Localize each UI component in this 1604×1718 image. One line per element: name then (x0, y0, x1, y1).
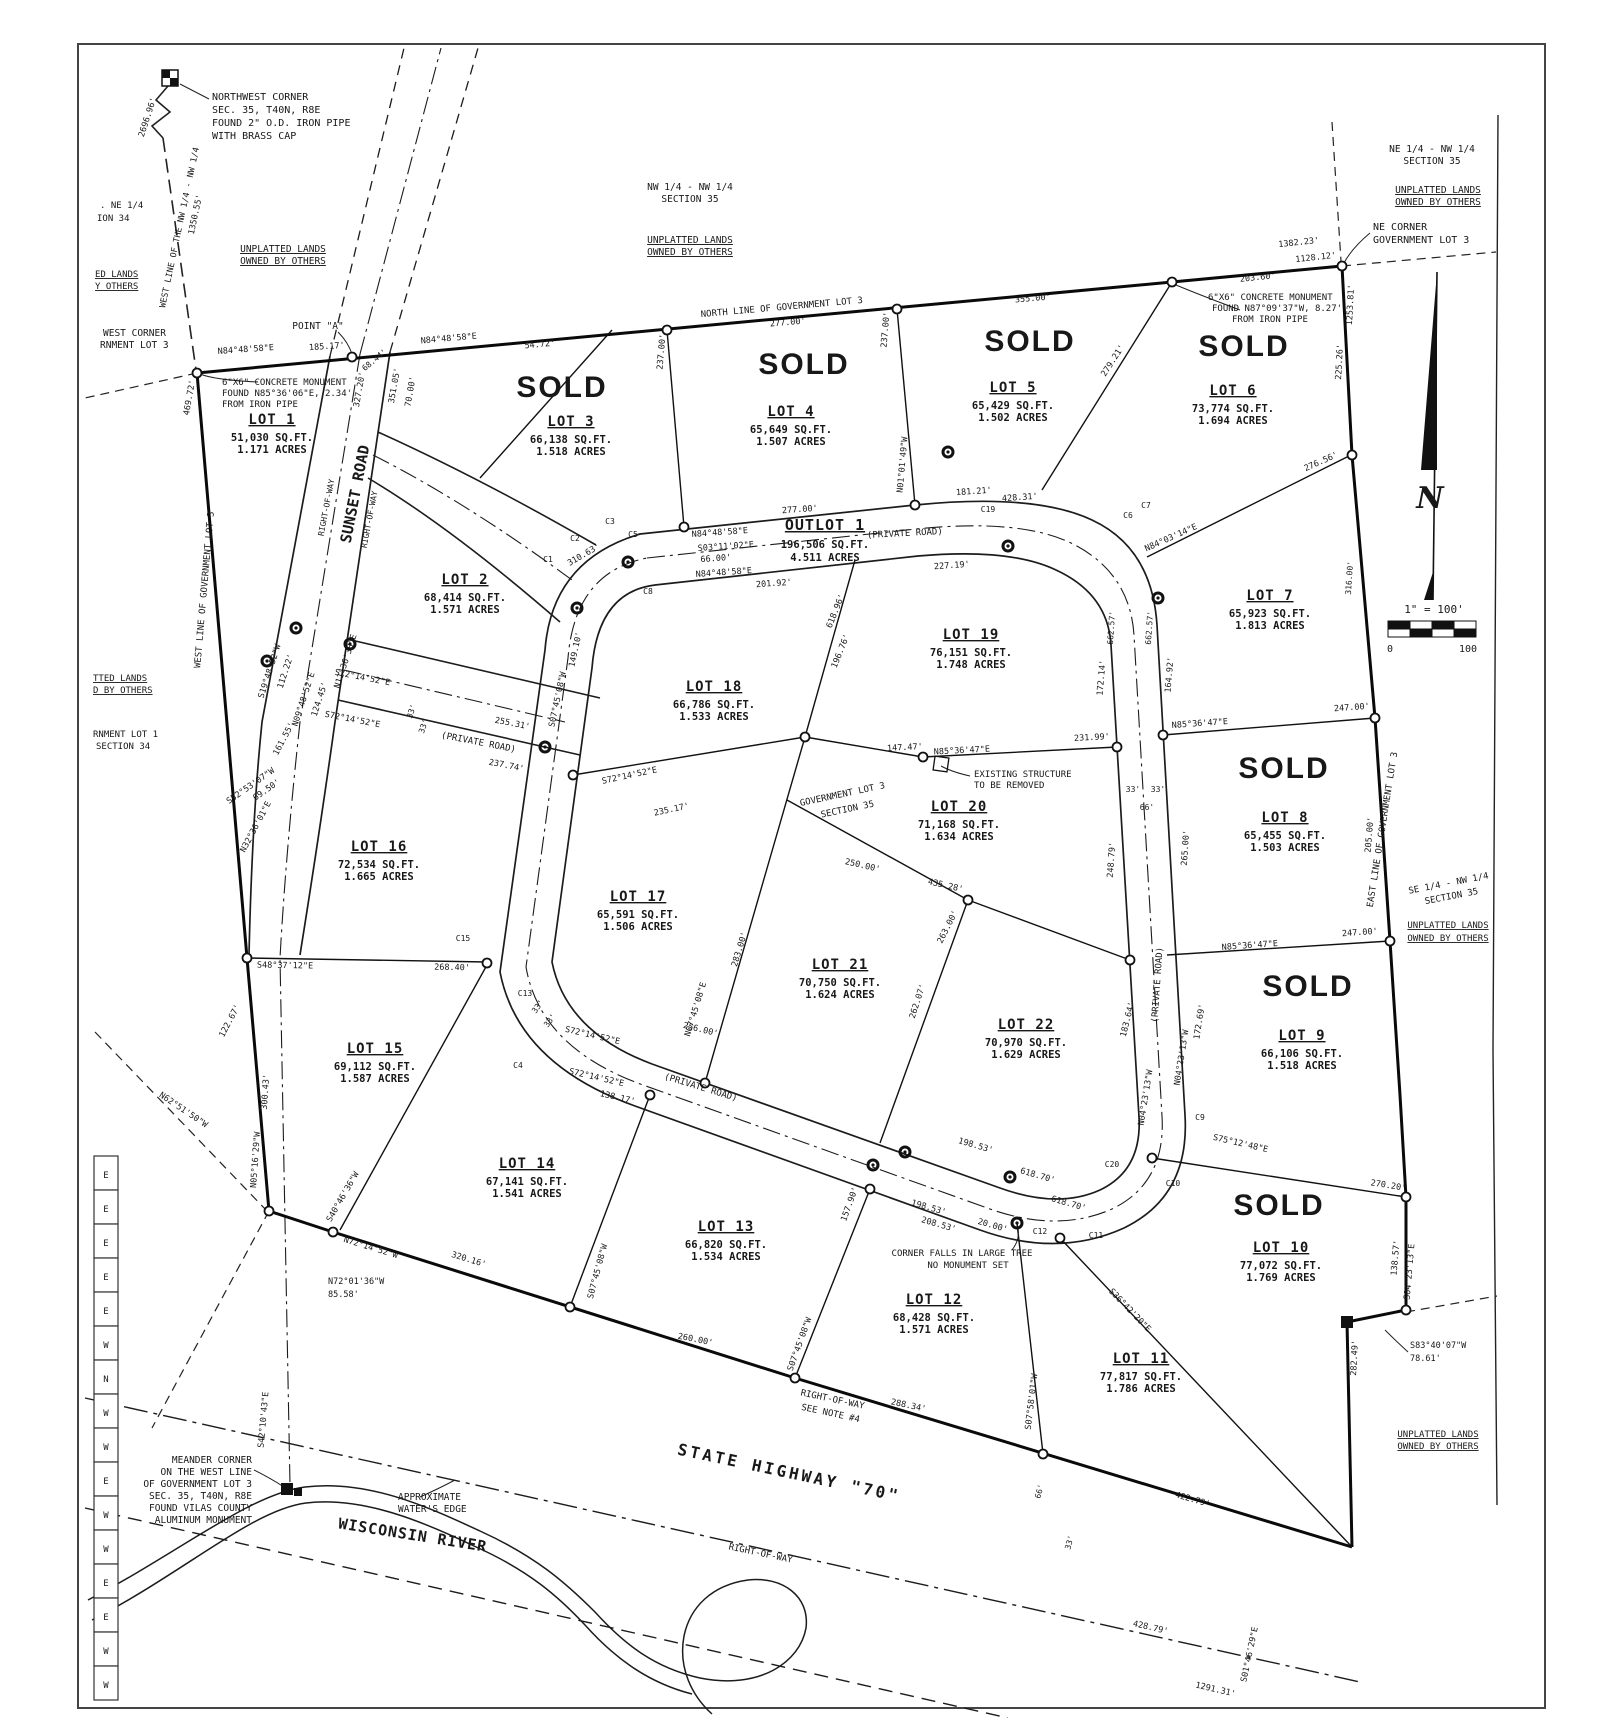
lot-area-sqft: 66,786 SQ.FT. (673, 699, 755, 711)
map-annotation: NORTHWEST CORNER (212, 92, 309, 103)
map-annotation: SECTION 35 (661, 194, 718, 205)
map-annotation: UNPLATTED LANDS (1407, 921, 1488, 931)
map-annotation: 428.31' (1002, 492, 1038, 504)
map-annotation: 268.40' (434, 963, 470, 974)
map-annotation: S07°45'08"W (547, 670, 569, 728)
survey-node (1371, 714, 1380, 723)
edge-table-letter: N (103, 1375, 108, 1385)
map-annotation: S40°46'36"W (325, 1169, 362, 1224)
survey-node (911, 501, 920, 510)
map-annotation: C11 (1089, 1231, 1104, 1240)
map-annotation: NORTH LINE OF GOVERNMENT LOT 3 (700, 296, 863, 320)
map-annotation: 618.96' (825, 593, 848, 630)
map-annotation: 122.67' (217, 1003, 243, 1039)
lot-area-acres: 1.518 ACRES (536, 446, 606, 458)
map-annotation: C12 (1033, 1227, 1048, 1236)
map-annotation: S07°45'08"W (586, 1242, 610, 1300)
lot-label: LOT 11 (1113, 1351, 1170, 1367)
map-annotation: 138.17' (599, 1089, 636, 1107)
lot-label: LOT 22 (998, 1017, 1055, 1033)
map-annotation: 618.70' (1050, 1194, 1087, 1213)
map-annotation: S19°48'52"W (257, 642, 284, 699)
map-annotation: Y OTHERS (95, 282, 138, 292)
map-annotation: CORNER FALLS IN LARGE TREE (892, 1249, 1033, 1259)
map-annotation: 618.70' (1019, 1166, 1056, 1185)
map-annotation: 316.00' (1344, 561, 1355, 595)
edge-table-letter: E (103, 1307, 108, 1317)
survey-node (329, 1228, 338, 1237)
map-annotation: N85°36'47"E (934, 745, 991, 758)
map-annotation: 66' (1140, 803, 1154, 812)
map-annotation: 172.69' (1192, 1003, 1207, 1040)
map-annotation: 0 (1387, 644, 1393, 655)
map-annotation: C3 (605, 517, 615, 526)
lot-label: LOT 15 (347, 1041, 404, 1057)
map-annotation: OWNED BY OTHERS (1407, 934, 1488, 944)
edge-table-letter: W (103, 1443, 109, 1453)
map-annotation: 662.57' (1144, 611, 1155, 645)
map-annotation: NE CORNER (1373, 222, 1428, 233)
map-annotation: WEST CORNER (103, 328, 166, 339)
map-annotation: 33' (542, 1012, 558, 1029)
map-annotation: SEC. 35, T40N, R8E (212, 105, 320, 116)
sold-badge: SOLD (1233, 1189, 1324, 1222)
map-annotation: FOUND N85°36'06"E, 2.34' (222, 389, 352, 399)
lot-area-acres: 1.503 ACRES (1250, 842, 1320, 854)
map-annotation: 100 (1459, 644, 1477, 655)
map-annotation: 33' (1126, 785, 1140, 794)
lot-label: LOT 10 (1253, 1240, 1310, 1256)
lot-area-sqft: 68,414 SQ.FT. (424, 592, 506, 604)
lot-area-acres: 1.634 ACRES (924, 831, 994, 843)
lot-area-sqft: 73,774 SQ.FT. (1192, 403, 1274, 415)
map-annotation: 225.26' (1334, 344, 1346, 380)
map-annotation: . NE 1/4 (100, 201, 143, 211)
edge-table-letter: E (103, 1613, 108, 1623)
map-annotation: 157.90' (839, 1186, 861, 1223)
map-annotation: WATER'S EDGE (398, 1504, 467, 1515)
map-annotation: GOVERNMENT LOT 3 (1373, 235, 1469, 246)
map-annotation: 422.79' (1174, 1490, 1211, 1509)
edge-table-letter: E (103, 1579, 108, 1589)
map-annotation: STATE HIGHWAY "70" (676, 1440, 902, 1506)
map-annotation: N72°01'36"W (328, 1277, 385, 1287)
map-annotation: 6"X6" CONCRETE MONUMENT (222, 378, 347, 388)
map-annotation: 237.00' (879, 312, 892, 349)
monument-bullseye-center (543, 745, 546, 748)
map-annotation: 262.07' (908, 983, 929, 1020)
map-annotation: 231.99' (1074, 732, 1110, 744)
lot-area-acres: 1.171 ACRES (237, 444, 307, 456)
survey-node (866, 1185, 875, 1194)
map-annotation: C2 (570, 534, 580, 543)
lot-area-acres: 1.571 ACRES (430, 604, 500, 616)
lot-label: LOT 12 (906, 1292, 963, 1308)
lot-label: LOT 19 (943, 627, 1000, 643)
survey-node (483, 959, 492, 968)
map-annotation: 54.72' (524, 339, 555, 352)
survey-node (348, 353, 357, 362)
monument-bullseye-center (575, 606, 578, 609)
lot-label: LOT 1 (248, 412, 295, 428)
map-annotation: 283.00' (730, 931, 750, 968)
map-annotation: 6"X6" CONCRETE MONUMENT (1208, 293, 1333, 303)
map-annotation: 164.92' (1163, 657, 1176, 694)
map-annotation: 172.14' (1095, 660, 1108, 697)
map-annotation: SEC. 35, T40N, R8E (149, 1491, 252, 1502)
map-annotation: 320.16' (450, 1250, 487, 1270)
map-annotation: TTED LANDS (93, 674, 147, 684)
map-annotation: 33' (417, 718, 430, 735)
map-annotation: ED LANDS (95, 270, 138, 280)
map-annotation: C15 (456, 934, 471, 943)
map-annotation: EXISTING STRUCTURE (974, 770, 1072, 780)
lot-area-acres: 1.629 ACRES (991, 1049, 1061, 1061)
map-annotation: 185.17' (309, 341, 345, 353)
map-annotation: N09°48'52"E (291, 671, 318, 728)
map-annotation: C19 (981, 505, 996, 514)
map-annotation: C8 (643, 587, 653, 596)
edge-table-letter: E (103, 1477, 108, 1487)
survey-node (1113, 743, 1122, 752)
lot-label: OUTLOT 1 (785, 516, 865, 534)
map-annotation: C9 (1195, 1113, 1205, 1122)
map-annotation: 181.21' (956, 486, 992, 498)
survey-node (680, 523, 689, 532)
map-annotation: 277.00' (782, 504, 818, 516)
monument-bullseye-center (1156, 596, 1159, 599)
map-annotation: 203.60' (1239, 271, 1276, 285)
lot-area-sqft: 72,534 SQ.FT. (338, 859, 420, 871)
lot-area-acres: 1.786 ACRES (1106, 1383, 1176, 1395)
map-annotation: FROM IRON PIPE (222, 400, 298, 410)
survey-node (663, 326, 672, 335)
survey-node (265, 1207, 274, 1216)
map-annotation: FOUND 2" O.D. IRON PIPE (212, 118, 350, 129)
map-annotation: 1128.12' (1295, 251, 1337, 265)
lot-area-acres: 1.587 ACRES (340, 1073, 410, 1085)
map-annotation: S42°10'43"E (257, 1391, 272, 1448)
map-annotation: 351.05' (387, 367, 403, 404)
lot-area-sqft: 69,112 SQ.FT. (334, 1061, 416, 1073)
map-annotation: 149.10' (567, 631, 584, 668)
map-annotation: NE 1/4 - NW 1/4 (1389, 144, 1475, 155)
lot-label: LOT 8 (1261, 810, 1308, 826)
edge-table-letter: W (103, 1545, 109, 1555)
map-annotation: ALUMINUM MONUMENT (155, 1515, 253, 1526)
survey-node (1148, 1154, 1157, 1163)
map-annotation: 147.47' (887, 742, 923, 754)
survey-node (193, 369, 202, 378)
lot-area-sqft: 66,138 SQ.FT. (530, 434, 612, 446)
map-annotation: S36°42'20"E (1106, 1287, 1152, 1334)
map-annotation: 66.00' (700, 553, 731, 565)
map-annotation: RNMENT LOT 3 (100, 340, 169, 351)
monument-bullseye-center (1015, 1221, 1018, 1224)
map-annotation: NW 1/4 - NW 1/4 (647, 182, 733, 193)
map-annotation: C10 (1166, 1179, 1181, 1188)
survey-node (1056, 1234, 1065, 1243)
map-annotation: FROM IRON PIPE (1232, 315, 1308, 325)
map-annotation: 247.00' (1334, 702, 1370, 714)
map-annotation: 1253.81' (1345, 284, 1357, 325)
lot-area-acres: 1.813 ACRES (1235, 620, 1305, 632)
map-annotation: FOUND N87°09'37"W, 8.27' (1212, 304, 1342, 314)
map-annotation: (PRIVATE ROAD) (663, 1072, 738, 1104)
map-annotation: UNPLATTED LANDS (240, 244, 326, 255)
map-annotation: 66' (1033, 1483, 1045, 1499)
map-annotation: C20 (1105, 1160, 1120, 1169)
lot-area-sqft: 70,970 SQ.FT. (985, 1037, 1067, 1049)
map-annotation: 428.79' (1132, 1619, 1169, 1637)
map-annotation: 70.00' (403, 376, 418, 408)
map-annotation: 247.00' (1342, 927, 1378, 939)
lot-label: LOT 16 (351, 839, 408, 855)
lot-area-sqft: 196,506 SQ.FT. (781, 539, 870, 551)
monument-bullseye-center (871, 1163, 874, 1166)
map-annotation: 68.44' (360, 347, 388, 372)
map-annotation: C6 (1123, 511, 1133, 520)
map-annotation: 138.57' (1389, 1240, 1402, 1277)
map-annotation: (PRIVATE ROAD) (867, 527, 943, 541)
lot-area-sqft: 68,428 SQ.FT. (893, 1312, 975, 1324)
map-annotation: FOUND VILAS COUNTY (149, 1503, 252, 1514)
map-annotation: RIGHT-OF-WAY (728, 1542, 794, 1565)
lot-area-acres: 1.624 ACRES (805, 989, 875, 1001)
sold-badge: SOLD (516, 371, 607, 404)
map-annotation: N84°48'58"E (420, 332, 477, 347)
map-annotation: POINT "A" (292, 321, 343, 332)
map-annotation: N05°16'29"W (249, 1131, 263, 1189)
map-annotation: 327.20' (352, 371, 368, 408)
monument-bullseye-center (1006, 544, 1009, 547)
monument-bullseye-center (626, 560, 629, 563)
scale-bar (1388, 621, 1476, 637)
edge-table: EEEEEWNWWEWWEEWW (94, 1156, 118, 1700)
lot-area-acres: 4.511 ACRES (790, 552, 860, 564)
lot-area-sqft: 77,072 SQ.FT. (1240, 1260, 1322, 1272)
lot-lines (247, 282, 1406, 1547)
survey-node (1402, 1306, 1411, 1315)
highway-lines (85, 1398, 1360, 1718)
map-annotation: S75°12'48"E (1212, 1133, 1269, 1155)
map-annotation: N85°36'47"E (1171, 717, 1228, 731)
map-annotation: S72°14'52"E (564, 1025, 621, 1047)
sold-badge: SOLD (984, 325, 1075, 358)
map-annotation: 255.31' (494, 716, 531, 733)
private-road-network (338, 432, 1185, 1244)
lot-area-acres: 1.769 ACRES (1246, 1272, 1316, 1284)
lot-area-sqft: 66,820 SQ.FT. (685, 1239, 767, 1251)
map-annotation: S83°40'07"W (1410, 1341, 1467, 1351)
map-annotation: 2696.96' (137, 96, 159, 138)
survey-node (964, 896, 973, 905)
map-annotation: 662.57' (1106, 611, 1117, 645)
map-annotation: MEANDER CORNER (172, 1455, 252, 1466)
map-annotation: 198.53' (957, 1136, 994, 1155)
map-annotation: OF GOVERNMENT LOT 3 (143, 1479, 252, 1490)
map-annotation: S03°11'02"E (697, 540, 754, 554)
survey-node (1168, 278, 1177, 287)
map-annotation: OWNED BY OTHERS (240, 256, 326, 267)
map-annotation: 33' (1151, 785, 1165, 794)
lot-area-acres: 1.506 ACRES (603, 921, 673, 933)
monument-bullseye-center (294, 626, 297, 629)
map-annotation: N04°23'13"W (1173, 1028, 1192, 1086)
lot-area-sqft: 65,591 SQ.FT. (597, 909, 679, 921)
survey-node (1386, 937, 1395, 946)
edge-table-letter: W (103, 1409, 109, 1419)
edge-table-letter: E (103, 1239, 108, 1249)
map-annotation: S01°46'29"E (1239, 1626, 1260, 1683)
monument-bullseye-center (946, 450, 949, 453)
map-annotation: OWNED BY OTHERS (1395, 197, 1481, 208)
lot-area-sqft: 51,030 SQ.FT. (231, 432, 313, 444)
map-annotation: APPROXIMATE (398, 1492, 461, 1503)
map-annotation: 161.55' (271, 721, 297, 757)
survey-node (1039, 1450, 1048, 1459)
map-annotation: OWNED BY OTHERS (1397, 1442, 1478, 1452)
lot-label: LOT 6 (1209, 383, 1256, 399)
survey-node (243, 954, 252, 963)
monument-bullseye-center (903, 1150, 906, 1153)
map-annotation: 248.79' (1106, 842, 1118, 878)
lot-area-sqft: 77,817 SQ.FT. (1100, 1371, 1182, 1383)
lot-area-acres: 1.534 ACRES (691, 1251, 761, 1263)
lot-label: LOT 4 (767, 404, 814, 420)
map-annotation: 282.49' (1349, 1340, 1361, 1376)
map-annotation: S07°58'01"W (1024, 1372, 1041, 1430)
map-annotation: 250.00' (844, 857, 881, 875)
map-annotation: N01°01'49"W (896, 435, 911, 493)
edge-table-letter: W (103, 1681, 109, 1691)
map-annotation: 227.19' (934, 560, 970, 572)
survey-node (1402, 1193, 1411, 1202)
map-annotation: WITH BRASS CAP (212, 131, 296, 142)
map-annotation: N85°36'47"E (1221, 939, 1278, 953)
lot-area-acres: 1.694 ACRES (1198, 415, 1268, 427)
lot-area-sqft: 67,141 SQ.FT. (486, 1176, 568, 1188)
map-annotation: NO MONUMENT SET (927, 1261, 1009, 1271)
survey-node (1348, 451, 1357, 460)
map-annotation: 235.17' (653, 801, 690, 818)
lot-area-sqft: 66,106 SQ.FT. (1261, 1048, 1343, 1060)
map-annotation: C7 (1141, 501, 1151, 510)
edge-table-letter: E (103, 1273, 108, 1283)
sold-badge: SOLD (1198, 330, 1289, 363)
survey-node (1126, 956, 1135, 965)
map-annotation: C5 (628, 530, 638, 539)
sold-badge: SOLD (1262, 970, 1353, 1003)
map-annotation: N84°48'58"E (217, 343, 274, 357)
map-annotation: N84°48'58"E (695, 566, 752, 580)
lot-area-acres: 1.571 ACRES (899, 1324, 969, 1336)
map-annotation: RIGHT-OF-WAY (317, 478, 337, 537)
lot-label: LOT 17 (610, 889, 667, 905)
sold-badge: SOLD (758, 348, 849, 381)
map-annotation: WISCONSIN RIVER (337, 1514, 488, 1555)
map-annotation: ION 34 (97, 214, 130, 224)
lot-area-sqft: 65,429 SQ.FT. (972, 400, 1054, 412)
edge-table-letter: W (103, 1511, 109, 1521)
lot-area-acres: 1.533 ACRES (679, 711, 749, 723)
edge-table-letter: E (103, 1171, 108, 1181)
lot-area-sqft: 65,455 SQ.FT. (1244, 830, 1326, 842)
survey-node (569, 771, 578, 780)
survey-node (646, 1091, 655, 1100)
map-annotation: S72°14'52"E (324, 710, 381, 731)
north-arrow (1421, 272, 1437, 600)
map-annotation: S72°14'52"E (568, 1067, 625, 1089)
lot-label: LOT 9 (1278, 1028, 1325, 1044)
survey-node (566, 1303, 575, 1312)
map-annotation: 355.00' (1015, 292, 1052, 305)
sold-badge: SOLD (1238, 752, 1329, 785)
survey-node (893, 305, 902, 314)
lot-area-acres: 1.748 ACRES (936, 659, 1006, 671)
lot-area-acres: 1.518 ACRES (1267, 1060, 1337, 1072)
lot-label: LOT 14 (499, 1156, 556, 1172)
lot-label: LOT 3 (547, 414, 594, 430)
lot-label: LOT 5 (989, 380, 1036, 396)
lot-label: LOT 21 (812, 957, 869, 973)
map-annotation: 85.58' (328, 1290, 359, 1300)
map-annotation: S48°37'12"E (257, 961, 313, 972)
lot-area-acres: 1.665 ACRES (344, 871, 414, 883)
lot-label: LOT 18 (686, 679, 743, 695)
map-annotation: 1" = 100' (1404, 603, 1464, 616)
lot-label: LOT 7 (1246, 588, 1293, 604)
map-annotation: N (1415, 481, 1445, 516)
edge-table-letter: W (103, 1341, 109, 1351)
map-annotation: 263.00' (936, 909, 961, 945)
lot-area-sqft: 71,168 SQ.FT. (918, 819, 1000, 831)
survey-node (1338, 262, 1347, 271)
map-annotation: 265.00' (1180, 830, 1192, 866)
map-annotation: N72°14'52"W (342, 1235, 400, 1261)
map-annotation: SECTION 35 (1403, 156, 1460, 167)
map-annotation: D BY OTHERS (93, 686, 153, 696)
map-annotation: 201.92' (756, 578, 792, 590)
plat-map-canvas: EEEEEWNWWEWWEEWW LOT 151,030 SQ.FT.1.171… (0, 0, 1604, 1718)
map-annotation: OWNED BY OTHERS (647, 247, 733, 258)
map-annotation: 198.53' (910, 1198, 947, 1217)
survey-node (791, 1374, 800, 1383)
map-annotation: N04°23'13"W (1137, 1068, 1156, 1126)
map-annotation: C1 (543, 555, 553, 564)
map-annotation: WEST LINE OF GOVERNMENT LOT 3 (193, 511, 217, 668)
map-annotation: 33' (1063, 1534, 1075, 1550)
map-annotation: 300.43' (260, 1074, 272, 1110)
map-annotation: ON THE WEST LINE (160, 1467, 252, 1478)
lot-area-sqft: 70,750 SQ.FT. (799, 977, 881, 989)
map-annotation: N84°03'14"E (1143, 522, 1198, 554)
map-annotation: RNMENT LOT 1 (93, 730, 158, 740)
map-annotation: UNPLATTED LANDS (1395, 185, 1481, 196)
map-annotation: 20.00' (976, 1217, 1008, 1235)
map-annotation: 270.20' (1370, 1178, 1407, 1193)
map-annotation: 277.00' (770, 316, 807, 329)
lot-area-sqft: 76,151 SQ.FT. (930, 647, 1012, 659)
map-annotation: C4 (513, 1061, 523, 1070)
map-annotation: TO BE REMOVED (974, 781, 1044, 791)
map-annotation: 237.74' (488, 758, 525, 775)
edge-table-letter: W (103, 1647, 109, 1657)
lot-area-sqft: 65,923 SQ.FT. (1229, 608, 1311, 620)
edge-table-letter: E (103, 1205, 108, 1215)
map-annotation: 469.72' (182, 379, 198, 416)
map-annotation: 208.53' (920, 1215, 957, 1234)
